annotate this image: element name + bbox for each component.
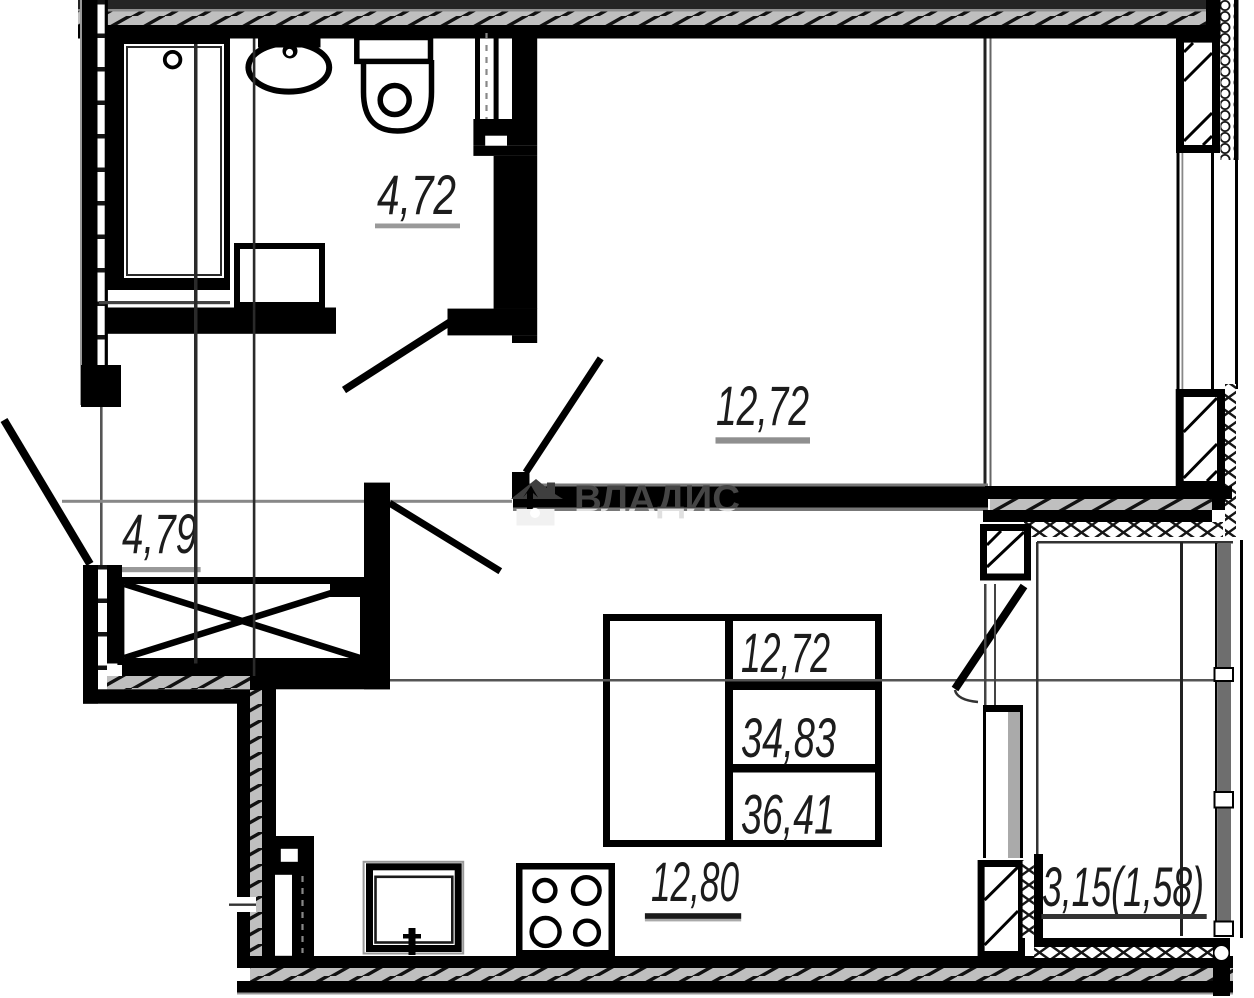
svg-text:12,72: 12,72 (741, 621, 830, 684)
svg-text:34,83: 34,83 (741, 706, 836, 769)
svg-text:12,80: 12,80 (651, 850, 739, 913)
svg-text:3,15(1,58): 3,15(1,58) (1042, 855, 1204, 918)
svg-text:4,79: 4,79 (122, 502, 197, 565)
svg-text:36,41: 36,41 (741, 783, 835, 846)
svg-text:4,72: 4,72 (377, 163, 456, 226)
svg-text:12,72: 12,72 (716, 374, 809, 437)
